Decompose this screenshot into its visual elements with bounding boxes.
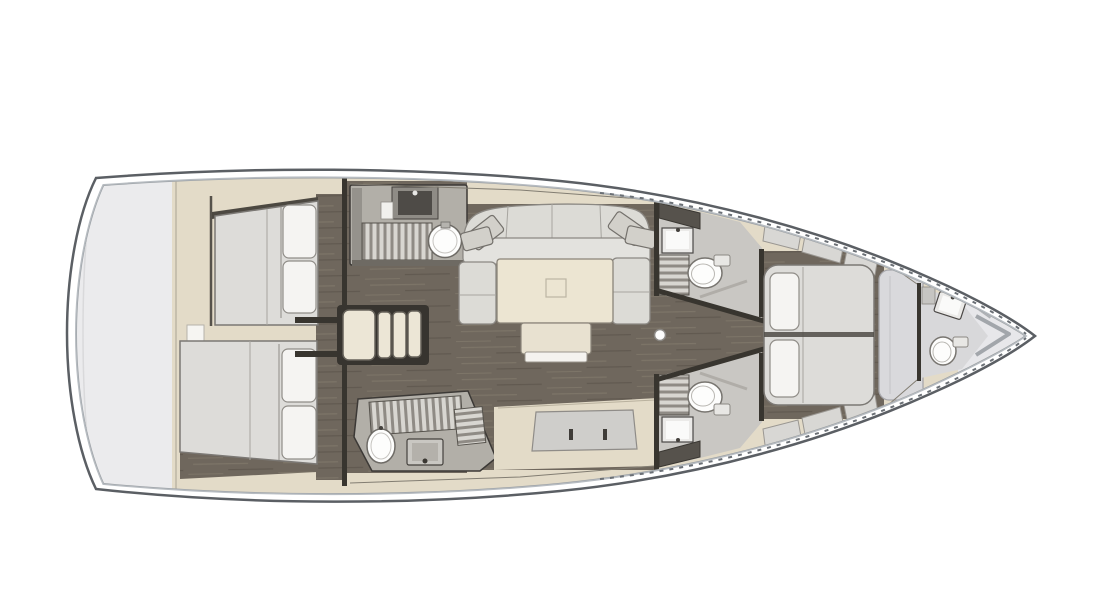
starboard-sideboard: [494, 398, 658, 470]
galley-port: [350, 185, 467, 266]
pillow: [283, 205, 316, 258]
faucet: [676, 438, 680, 442]
pillow: [770, 340, 799, 397]
galley-grate: [362, 223, 432, 260]
pillow: [283, 261, 316, 313]
aft-cabin-port: [212, 197, 318, 325]
handle: [569, 429, 573, 440]
pillow: [770, 273, 799, 330]
sofa-return-right: [612, 258, 650, 324]
floor-plan-canvas: [0, 0, 1115, 600]
faucet: [379, 426, 383, 430]
handle: [603, 429, 607, 440]
sofa-return-left: [459, 262, 496, 324]
bed-split-line: [764, 332, 874, 337]
bench-seat: [521, 323, 591, 354]
aft-cabin-starboard: [180, 341, 317, 464]
bench-front: [525, 352, 587, 362]
faucet: [676, 228, 680, 232]
dining-table: [497, 259, 613, 323]
yacht-floor-plan: [0, 0, 1115, 600]
shower-grate: [659, 255, 689, 295]
pillow: [282, 406, 316, 459]
companionway-stairs: [337, 305, 429, 365]
shelf: [922, 287, 935, 304]
shower-grate: [659, 375, 689, 415]
faucet: [413, 191, 418, 196]
stove-knob: [423, 459, 428, 464]
basin-tap: [441, 222, 450, 228]
toilet: [930, 337, 956, 365]
sideboard-panel: [532, 410, 637, 451]
cutting-board: [381, 202, 393, 219]
interior: [67, 168, 1028, 504]
mast-post: [655, 330, 666, 341]
rack-grate: [454, 407, 486, 446]
